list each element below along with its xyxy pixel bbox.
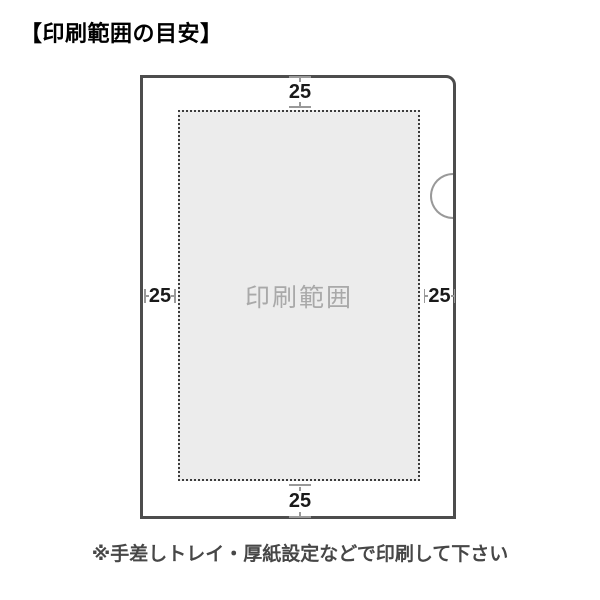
margin-measure-bottom: 25: [279, 484, 321, 518]
margin-measure-top: 25: [279, 76, 321, 108]
measure-cap: [289, 516, 311, 518]
print-range-guide-page: 【印刷範囲の目安】 印刷範囲 25 25 25 25 ※手差しトレイ・厚紙設定な…: [0, 0, 600, 600]
measure-cap: [289, 106, 311, 108]
margin-value-right: 25: [428, 286, 450, 306]
printable-area: 印刷範囲: [178, 110, 420, 481]
measure-tick: [299, 512, 301, 516]
margin-measure-left: 25: [144, 283, 176, 309]
margin-measure-right: 25: [424, 283, 455, 309]
measure-cap: [454, 289, 455, 303]
page-title: 【印刷範囲の目安】: [20, 16, 223, 48]
print-instruction-note: ※手差しトレイ・厚紙設定などで印刷して下さい: [0, 539, 600, 566]
print-area-label: 印刷範囲: [245, 278, 353, 314]
margin-value-left: 25: [149, 286, 171, 306]
margin-value-top: 25: [289, 82, 311, 102]
measure-cap: [174, 289, 176, 303]
margin-value-bottom: 25: [289, 491, 311, 511]
